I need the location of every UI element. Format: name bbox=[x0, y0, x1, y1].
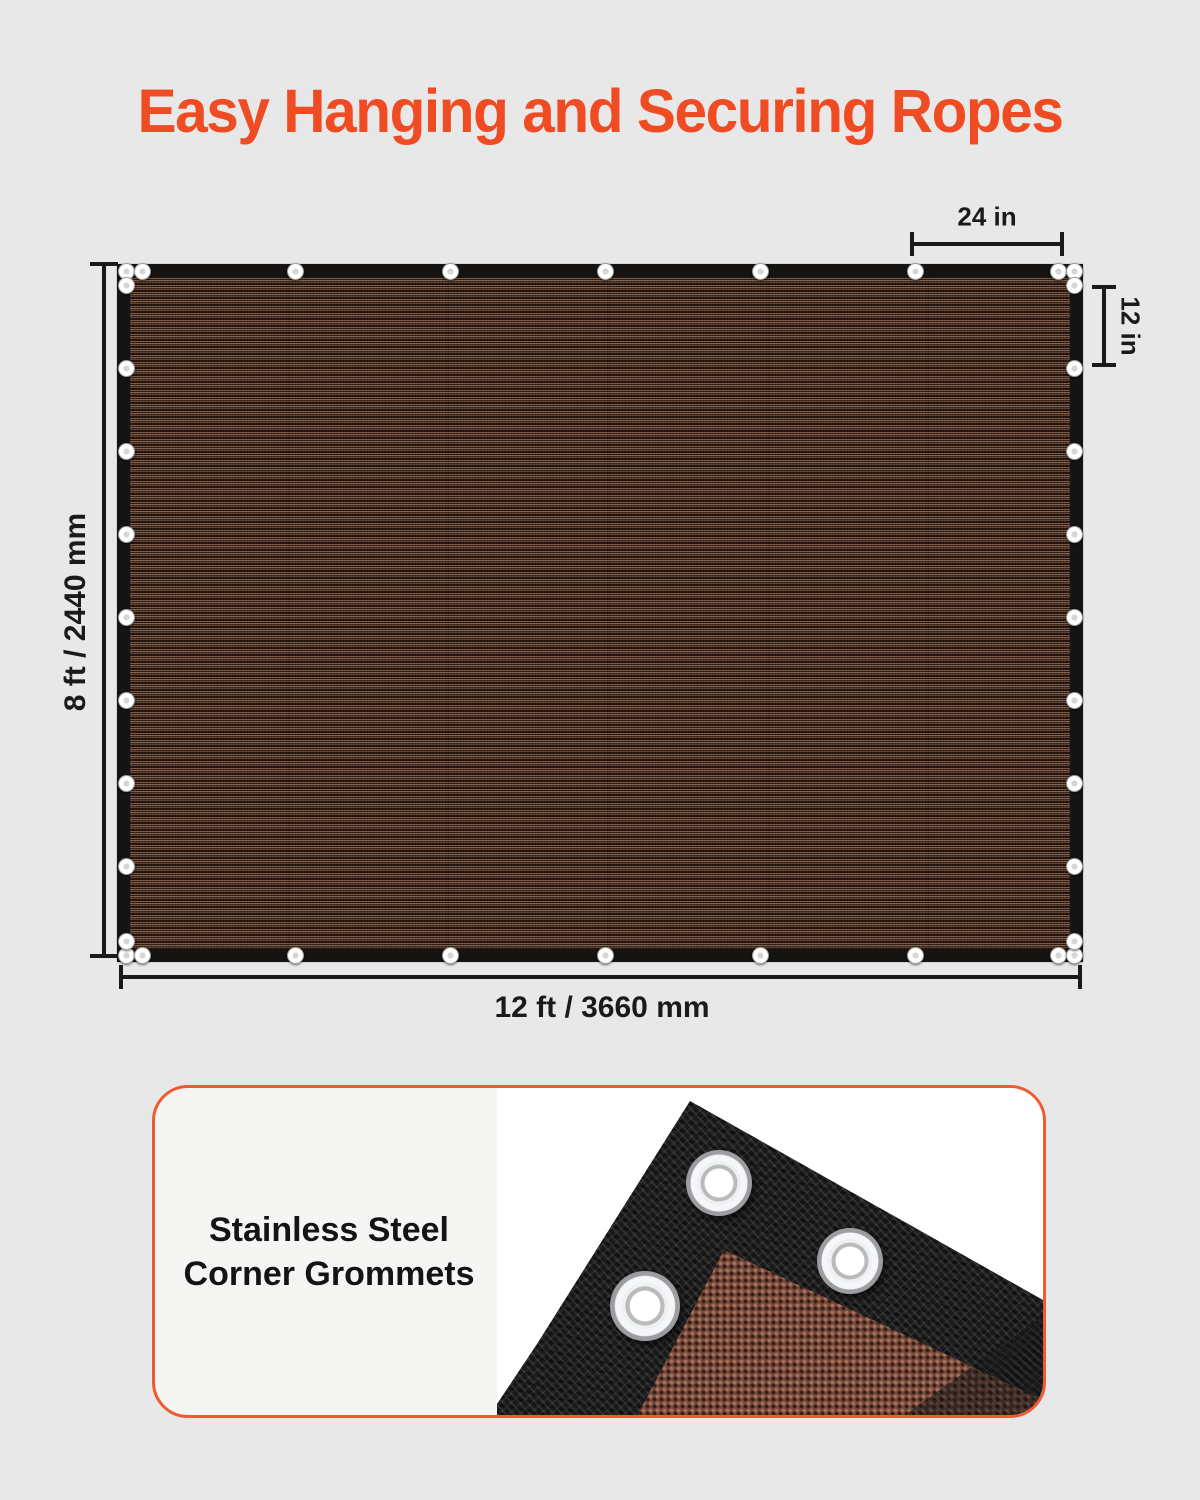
grommet-icon bbox=[118, 933, 135, 950]
dim-cap bbox=[1092, 285, 1116, 289]
grommet-icon bbox=[1066, 526, 1083, 543]
mesh-fabric bbox=[130, 277, 1070, 949]
grommet-icon bbox=[287, 947, 304, 964]
grommet-icon bbox=[1066, 933, 1083, 950]
grommet-icon bbox=[118, 443, 135, 460]
dim-line bbox=[119, 975, 1082, 979]
grommet-icon bbox=[118, 692, 135, 709]
grommet-icon bbox=[118, 526, 135, 543]
grommet-icon bbox=[118, 277, 135, 294]
dim-cap bbox=[119, 965, 123, 989]
grommet-icon bbox=[134, 263, 151, 280]
grommet-icon bbox=[686, 1150, 752, 1216]
grommet-icon bbox=[752, 947, 769, 964]
dim-label-height: 8 ft / 2440 mm bbox=[59, 513, 93, 711]
grommet-icon bbox=[1066, 360, 1083, 377]
grommet-icon bbox=[1050, 947, 1067, 964]
grommet-icon bbox=[118, 360, 135, 377]
grommet-icon bbox=[907, 263, 924, 280]
dim-line bbox=[1102, 285, 1106, 367]
grommet-icon bbox=[442, 263, 459, 280]
page-title: Easy Hanging and Securing Ropes bbox=[24, 78, 1176, 145]
shade-cloth-panel bbox=[117, 264, 1083, 962]
dim-cap bbox=[90, 262, 118, 266]
dim-cap bbox=[90, 954, 118, 958]
dim-cap bbox=[910, 232, 914, 256]
dim-label-width: 12 ft / 3660 mm bbox=[494, 991, 709, 1025]
dim-label-24in: 24 in bbox=[957, 202, 1016, 233]
grommet-icon bbox=[817, 1228, 883, 1294]
dim-label-12in: 12 in bbox=[1115, 296, 1146, 355]
grommet-icon bbox=[1066, 692, 1083, 709]
grommet-icon bbox=[597, 263, 614, 280]
grommet-icon bbox=[1066, 443, 1083, 460]
feature-label-line2: Corner Grommets bbox=[184, 1252, 475, 1296]
grommet-icon bbox=[287, 263, 304, 280]
grommet-icon bbox=[118, 775, 135, 792]
dim-line bbox=[910, 242, 1064, 246]
feature-label-line1: Stainless Steel bbox=[209, 1208, 449, 1252]
corner-grommets-photo bbox=[497, 1088, 1043, 1415]
dim-line bbox=[102, 262, 106, 958]
grommet-icon bbox=[134, 947, 151, 964]
grommet-icon bbox=[1066, 277, 1083, 294]
grommet-icon bbox=[752, 263, 769, 280]
product-infographic: Easy Hanging and Securing Ropes 24 in 12… bbox=[0, 0, 1200, 1500]
grommet-icon bbox=[597, 947, 614, 964]
grommet-icon bbox=[610, 1271, 680, 1341]
dim-cap bbox=[1078, 965, 1082, 989]
grommet-icon bbox=[1066, 609, 1083, 626]
grommet-icon bbox=[442, 947, 459, 964]
feature-label: Stainless Steel Corner Grommets bbox=[155, 1088, 503, 1415]
grommet-icon bbox=[118, 609, 135, 626]
grommet-icon bbox=[118, 858, 135, 875]
dim-cap bbox=[1092, 363, 1116, 367]
grommet-icon bbox=[1050, 263, 1067, 280]
grommet-icon bbox=[1066, 858, 1083, 875]
grommet-icon bbox=[1066, 775, 1083, 792]
grommet-icon bbox=[907, 947, 924, 964]
feature-card: Stainless Steel Corner Grommets bbox=[152, 1085, 1046, 1418]
dim-cap bbox=[1060, 232, 1064, 256]
